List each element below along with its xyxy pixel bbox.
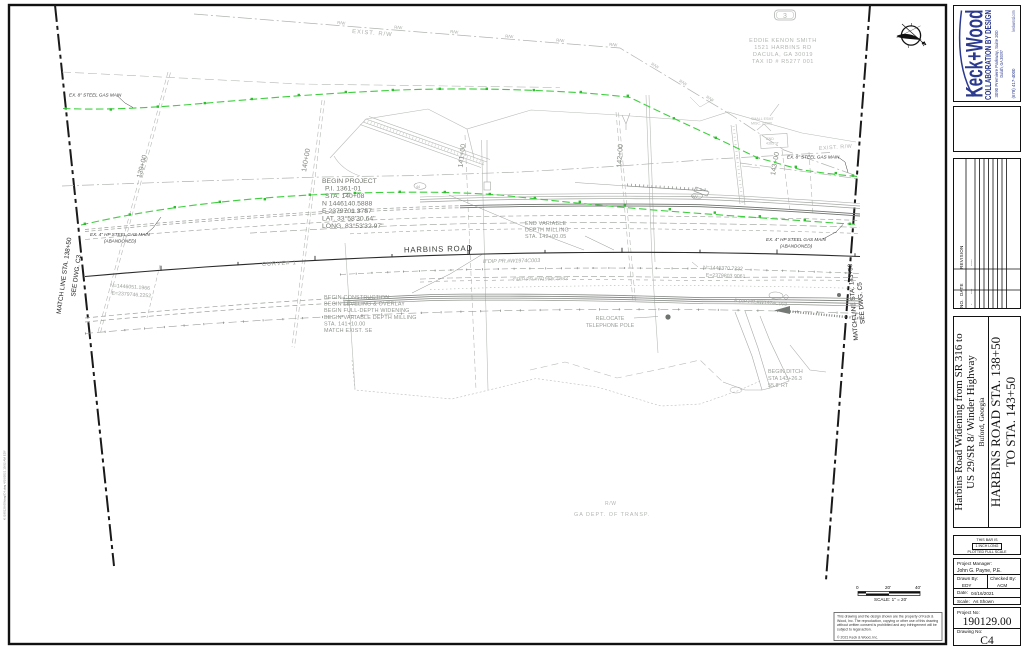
- svg-text:R/W: R/W: [450, 29, 459, 35]
- svg-text:55.8' RT: 55.8' RT: [768, 383, 789, 389]
- svg-text:© 2021 Keck & Wood, Inc.: © 2021 Keck & Wood, Inc.: [837, 636, 878, 640]
- svg-text:P.I. 1361-01: P.I. 1361-01: [325, 186, 361, 193]
- svg-text:R/W: R/W: [556, 38, 565, 44]
- svg-text:CURVE# 1: CURVE# 1: [262, 260, 297, 268]
- svg-text:R/W: R/W: [605, 501, 617, 507]
- svg-text:R/W: R/W: [678, 78, 688, 87]
- svg-text:140+00: 140+00: [301, 148, 312, 173]
- svg-text:STA. 142+00.05: STA. 142+00.05: [525, 234, 567, 240]
- svg-text:R/W: R/W: [650, 61, 660, 70]
- svg-text:R/W: R/W: [705, 94, 715, 103]
- svg-text:-----: -----: [968, 259, 973, 266]
- svg-text:-: -: [968, 303, 973, 305]
- svg-text:STA 143+26.3: STA 143+26.3: [768, 376, 802, 382]
- svg-text:BEGIN CONSTRUCTION:: BEGIN CONSTRUCTION:: [324, 295, 391, 301]
- svg-text:R/W: R/W: [505, 34, 514, 40]
- svg-text:R/W: R/W: [337, 20, 346, 26]
- svg-text:keckwood.com: keckwood.com: [1011, 10, 1017, 31]
- svg-text:EX. 4" HP STEEL GAS MAIN: EX. 4" HP STEEL GAS MAIN: [766, 237, 827, 242]
- svg-text:GA DEPT. OF TRANSP.: GA DEPT. OF TRANSP.: [574, 512, 650, 518]
- svg-text:0: 0: [856, 585, 859, 590]
- svg-text:E 2379701.3757: E 2379701.3757: [322, 208, 372, 215]
- svg-text:DEPTH MILLING: DEPTH MILLING: [525, 227, 569, 233]
- svg-text:COLLABORATION BY DESIGN: COLLABORATION BY DESIGN: [984, 9, 993, 99]
- svg-text:REVISION: REVISION: [959, 245, 964, 269]
- svg-text:DACULA, GA 30019: DACULA, GA 30019: [753, 52, 813, 58]
- svg-text:RELOCATE: RELOCATE: [596, 316, 625, 322]
- svg-text:END VARIABLE: END VARIABLE: [525, 221, 566, 227]
- svg-text:20': 20': [885, 585, 891, 590]
- svg-text:E=2379746.2252: E=2379746.2252: [111, 291, 151, 300]
- svg-text:Duluth, GA 30097: Duluth, GA 30097: [999, 49, 1005, 77]
- svg-text:4363'0T: 4363'0T: [766, 142, 780, 146]
- svg-text:N: N: [921, 41, 928, 48]
- svg-text:LAT. 33°58'30.64": LAT. 33°58'30.64": [322, 215, 376, 223]
- svg-text:2'ND: 2'ND: [766, 137, 774, 141]
- svg-text:139+00: 139+00: [136, 154, 149, 179]
- svg-text:N=1446370.7232: N=1446370.7232: [703, 265, 743, 272]
- svg-text:40': 40': [915, 585, 921, 590]
- svg-text:STA. 140+08: STA. 140+08: [325, 193, 365, 200]
- svg-text:LONG. 83°53'32.97": LONG. 83°53'32.97": [322, 222, 384, 230]
- svg-text:SEE DWG. C3: SEE DWG. C3: [70, 254, 83, 297]
- svg-text:(678) 417-4000: (678) 417-4000: [1011, 68, 1017, 98]
- svg-text:MISC. 23900: MISC. 23900: [751, 122, 772, 126]
- svg-text:MATCH EXIST. SE: MATCH EXIST. SE: [324, 328, 373, 334]
- svg-text:SCALE: 1" = 20': SCALE: 1" = 20': [874, 597, 907, 602]
- svg-text:EXIST. R/W: EXIST. R/W: [352, 29, 393, 38]
- svg-text:R/W: R/W: [394, 25, 403, 31]
- svg-text:HARBINS ROAD: HARBINS ROAD: [404, 244, 473, 255]
- svg-text:N 1446140.5888: N 1446140.5888: [322, 201, 372, 208]
- svg-text:EDDIE KENON SMITH: EDDIE KENON SMITH: [749, 38, 817, 44]
- svg-text:subject to legal action.: subject to legal action.: [837, 627, 872, 631]
- svg-text:3: 3: [783, 13, 787, 20]
- svg-text:TAX ID # R5277 001: TAX ID # R5277 001: [752, 59, 814, 65]
- svg-text:MATCH LINE STA. 138+50: MATCH LINE STA. 138+50: [56, 237, 74, 315]
- svg-text:BEGIN LEVELING & OVERLAY: BEGIN LEVELING & OVERLAY: [324, 302, 405, 308]
- svg-text:SMALL ESMT: SMALL ESMT: [751, 117, 774, 121]
- svg-text:(ABANDONED): (ABANDONED): [780, 244, 813, 249]
- svg-text:NO.: NO.: [959, 299, 964, 308]
- svg-text:3090 Premiere Parkway, Suite 2: 3090 Premiere Parkway, Suite 200: [994, 30, 1000, 97]
- svg-text:(ABANDONED): (ABANDONED): [104, 239, 137, 244]
- svg-text:K:\190129.00\dwg\C4.dwg 4/16/: K:\190129.00\dwg\C4.dwg 4/16/2021 10:52 …: [3, 450, 7, 520]
- svg-text:EX. 8" STEEL GAS MAIN: EX. 8" STEEL GAS MAIN: [69, 93, 122, 98]
- svg-text:141+00: 141+00: [458, 144, 468, 168]
- svg-text:EXIST. R/W: EXIST. R/W: [819, 144, 853, 152]
- svg-text:E=2379803.9061: E=2379803.9061: [706, 273, 746, 280]
- svg-text:WV: WV: [692, 195, 698, 199]
- svg-text:8"DIP PR.#W1974C003: 8"DIP PR.#W1974C003: [483, 258, 540, 265]
- svg-text:----: ----: [968, 288, 973, 294]
- svg-text:R/W: R/W: [609, 42, 618, 48]
- svg-text:EX. 8" STEEL GAS MAIN: EX. 8" STEEL GAS MAIN: [787, 155, 840, 160]
- svg-text:DATE: DATE: [959, 283, 964, 296]
- svg-text:BEGIN VARIABLE DEPTH MILLING: BEGIN VARIABLE DEPTH MILLING: [324, 315, 417, 321]
- svg-text:4"DIP PR.#W1958C0883: 4"DIP PR.#W1958C0883: [512, 276, 568, 283]
- svg-text:44: 44: [416, 185, 420, 189]
- svg-text:BEGIN PROJECT: BEGIN PROJECT: [322, 178, 377, 185]
- svg-text:1521 HARBINS RD: 1521 HARBINS RD: [754, 45, 812, 51]
- svg-text:STA. 141+10.00: STA. 141+10.00: [324, 321, 366, 327]
- svg-text:BEGIN FULL-DEPTH WIDENING: BEGIN FULL-DEPTH WIDENING: [324, 308, 410, 314]
- svg-text:TELEPHONE POLE: TELEPHONE POLE: [586, 323, 635, 329]
- svg-text:142+00: 142+00: [616, 144, 625, 168]
- svg-text:EX. 4" HP STEEL GAS MAIN: EX. 4" HP STEEL GAS MAIN: [90, 232, 151, 237]
